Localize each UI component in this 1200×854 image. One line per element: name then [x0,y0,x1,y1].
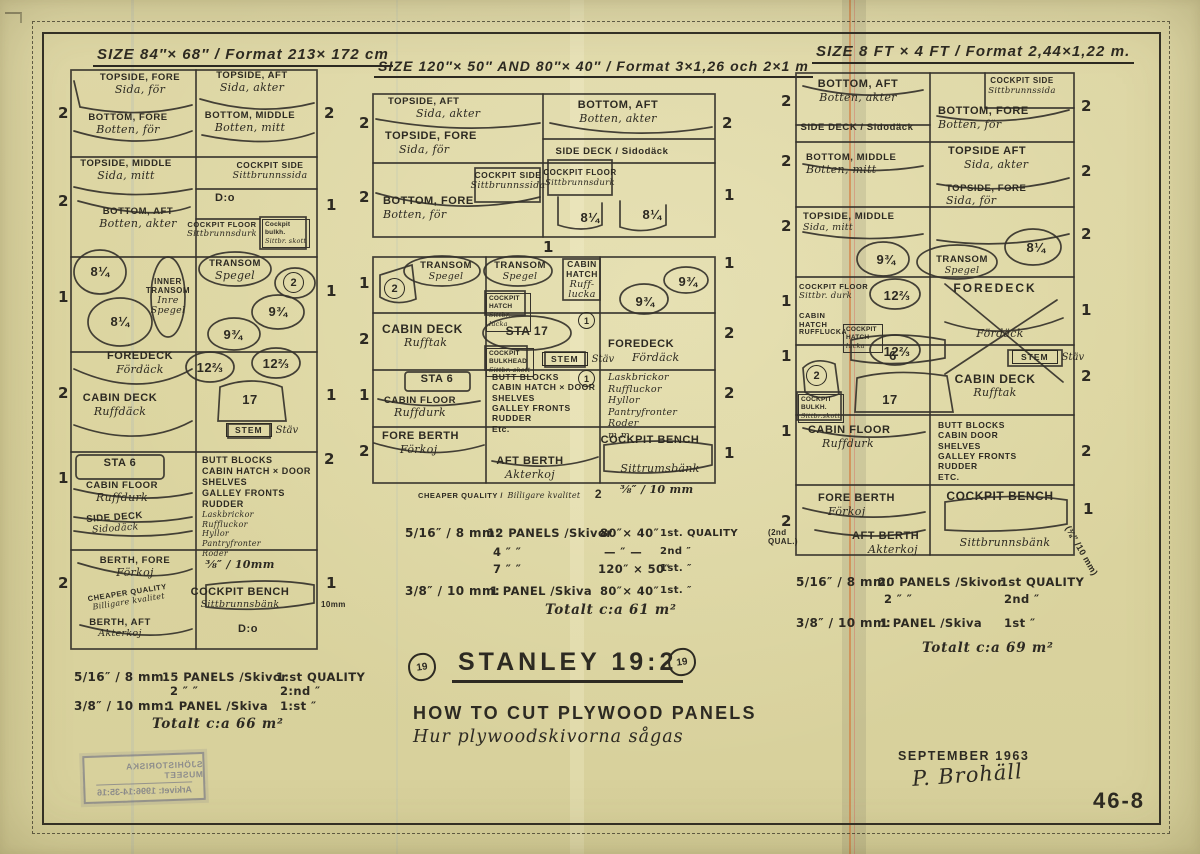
margin-count: 2 [1081,442,1091,460]
drawing-title: STANLEY 19:2 [452,648,683,683]
summary-thickness: 5/16″ / 8 mm: [796,575,891,589]
piece-number: 12⅔ [197,358,224,377]
margin-count: 1 [326,196,336,214]
stem-label: STEMStäv [1012,350,1084,364]
margin-count: 2 [781,217,791,235]
summary-count: 20 PANELS /Skivor [878,575,1003,589]
summary-count: 15 PANELS /Skivor [162,670,287,684]
summary-count: 2 ″ ″ [170,684,198,698]
margin-count: 1 [724,186,734,204]
margin-count: 1 [326,386,336,404]
piece-label: COCKPIT BENCH [946,489,1053,503]
drawing-subtitle-en: HOW TO CUT PLYWOOD PANELS [413,703,757,724]
piece-label: BOTTOM, FOREBotten, för [88,112,167,137]
margin-count: 2 [359,330,369,348]
piece-label: SIDE DECK / Sidodäck [801,122,914,133]
piece-number: 9¾ [268,302,287,321]
cockpit-hatch-box: COCKPITHATCHlucka [843,324,883,353]
summary-total: Totalt c:a 61 m² [545,602,677,618]
summary-quality: 2nd ″ [1004,592,1040,606]
margin-count: 1 [724,254,734,272]
piece-label: BOTTOM, MIDDLEBotten, mitt [806,152,896,177]
piece-label: FORE BERTHFörkoj [818,492,895,518]
piece-label: BOTTOM, AFTBotten, akter [99,206,176,231]
piece-label: CABIN FLOORRuffdurk [384,395,456,420]
piece-label: SIDE DECK / Sidodäck [556,146,669,157]
piece-label-sv: Fördäck [976,327,1023,340]
top-count: 1 [543,238,553,256]
piece-label: BERTH, AFTAkterkoj [89,617,151,640]
margin-count: 2 [58,574,68,592]
margin-count: 1 [1081,301,1091,319]
margin-count: 1 [781,292,791,310]
margin-count: 2 [722,114,732,132]
diagram2-title: SIZE 120″× 50″ AND 80″× 40″ / Format 3×1… [374,58,813,78]
binder-mark [5,12,22,23]
piece-label: BOTTOM, FOREBotten, för [383,195,474,221]
piece-number: 8¼ [580,208,599,227]
margin-count: 2 [1081,162,1091,180]
misc-pieces-list-sv: LaskbrickorRuffluckorHyllorPantryfronter… [608,372,677,441]
piece-label: TOPSIDE, FORESida, för [385,130,477,156]
margin-count: 2 [58,192,68,210]
piece-label: TRANSOMSpegel [420,260,472,283]
summary-count: 1 PANEL /Skiva [166,699,268,713]
piece-label: FOREDECK [953,281,1036,295]
piece-label: TOPSIDE, AFTSida, akter [388,96,480,121]
summary-quality: 2:nd ″ [280,684,321,698]
summary-count: 4 ″ ″ [493,545,521,559]
piece-label: FORE BERTHFörkoj [382,430,459,456]
station-label: STA 6 [104,457,137,470]
margin-count: 1 [58,288,68,306]
piece-label: TOPSIDE, AFTSida, akter [216,70,288,95]
piece-label: TOPSIDE, FORESida, för [946,183,1026,208]
summary-quality: 1:st QUALITY [276,670,365,684]
summary-quality: 1st. ″ [660,563,692,574]
margin-count: 2 [359,188,369,206]
museum-stamp: SJÖHISTORISKA MUSEET Arkivet: 1996:14-35… [82,752,206,804]
piece-label: AFT BERTHAkterkoj [852,530,919,556]
summary-count: 2 ″ ″ [884,592,912,606]
margin-count: 1 [781,422,791,440]
ditto-label: D:o [238,623,258,636]
margin-count: 2 [359,114,369,132]
sheet-number: 46-8 [1093,788,1145,814]
piece-label: CABIN FLOORRuffdurk [86,480,158,505]
stem-label: STEMStäv [226,423,298,437]
diagram3-title: SIZE 8 FT × 4 FT / Format 2,44×1,22 m. [812,43,1134,64]
piece-number: 17 [242,390,257,409]
summary-total: Totalt c:a 69 m² [922,640,1054,656]
cockpit-bulkhead-box: COCKPITBULKH.Sittbr.skott [798,394,844,423]
piece-label: CABINHATCHRuff-lucka [566,260,598,301]
summary-size: 80″× 40″ [600,526,659,540]
station-label: STA 6 [421,373,454,386]
misc-pieces-list: BUTT BLOCKSCABIN DOORSHELVESGALLEY FRONT… [938,420,1017,482]
count-circle: 2 [806,365,827,386]
margin-count: 1 [326,282,336,300]
piece-number: 9¾ [635,292,654,311]
piece-number: 8¼ [642,205,661,224]
piece-label: BOTTOM, FOREBotten, för [938,105,1029,131]
summary-total: Totalt c:a 66 m² [152,716,284,732]
piece-label: COCKPIT SIDESittbrunnssida [233,160,308,182]
piece-label: COCKPIT BENCH [601,434,700,447]
margin-count: 2 [724,324,734,342]
piece-label: BOTTOM, AFTBotten, akter [818,78,899,104]
piece-label: COCKPIT SIDESittbrunnssida [988,76,1055,96]
piece-label: COCKPIT FLOORSittbrunnsdurk [543,168,616,188]
margin-count: 1 [359,386,369,404]
thickness-note: ⅜″ / 10 mm [620,483,693,496]
piece-label: FOREDECKFördäck [107,350,173,376]
piece-label: SIDE DECKSidodäck [86,510,144,537]
piece-label: TRANSOMSpegel [494,260,546,283]
piece-number: 17 [882,390,897,409]
piece-label: CABINHATCHRUFFLUCKA [799,312,847,337]
summary-count: 7 ″ ″ [493,562,521,576]
cockpit-bulkhead-box: Cockpit bulkh. Sittbr. skott [262,219,310,248]
summary-size: — ″ — [604,545,642,559]
piece-number: 6 [889,346,897,365]
margin-count: 2 [58,104,68,122]
blueprint-sheet: SIZE 84″× 68″ / Format 213× 172 cm 2 2 1… [0,0,1200,854]
summary-thickness: 5/16″ / 8 mm: [74,670,169,684]
summary-thickness: 3/8″ / 10 mm: [74,699,169,713]
station-label: STA 17 [506,324,549,338]
margin-count: 2 [1081,367,1091,385]
summary-count: 12 PANELS /Skivor [487,526,612,540]
piece-label: TOPSIDE, FORESida, för [100,72,180,97]
summary-quality: 1st QUALITY [1000,575,1084,589]
quality-note: CHEAPER QUALITY / Billigare kvalitet 2 [418,484,602,503]
summary-quality: 1st. ″ [660,585,692,596]
piece-label: BOTTOM, AFTBotten, akter [578,99,659,125]
stem-label: STEMStäv [542,352,614,366]
piece-label: COCKPIT BENCHSittbrunnsbänk [191,586,290,611]
piece-label: TOPSIDE AFTSida, akter [948,145,1028,171]
summary-count: 1 PANEL /Skiva [880,616,982,630]
piece-label: CABIN DECKRuffdäck [83,392,158,418]
piece-label: TRANSOMSpegel [936,254,988,277]
margin-count: 1 [326,574,336,592]
margin-quality-note: QUAL.) [768,537,798,546]
summary-quality: 1st ″ [1004,616,1036,630]
piece-number: 12⅔ [263,354,290,373]
piece-label: INNERTRANSOMInreSpegel [146,278,190,316]
count-circle: 2 [384,278,405,299]
count-circle: 2 [283,272,304,293]
piece-number: 9¾ [223,325,242,344]
margin-thickness-note: 10mm [321,600,346,609]
summary-thickness: 3/8″ / 10 mm: [796,616,891,630]
summary-count: 1 PANEL /Skiva [490,584,592,598]
piece-number: 9¾ [678,272,697,291]
piece-label: CABIN DECKRufftak [382,322,463,350]
piece-number: 8¼ [1026,238,1045,257]
summary-quality: 1st. QUALITY [660,528,738,539]
misc-pieces-list: BUTT BLOCKSCABIN HATCH × DOORSHELVESGALL… [202,455,311,559]
summary-thickness: 3/8″ / 10 mm: [405,584,500,598]
margin-count: 1 [359,274,369,292]
piece-number: 12⅔ [884,342,911,361]
piece-number: 8¼ [110,312,129,331]
margin-count: 1 [781,347,791,365]
margin-count: 2 [724,384,734,402]
thickness-note: ⅜″ / 10mm [205,558,274,571]
margin-count: 2 [58,384,68,402]
margin-count: 2 [781,92,791,110]
margin-count: 1 [58,469,68,487]
margin-count: 2 [359,442,369,460]
margin-quality-note: (2nd [768,528,787,537]
piece-label: TOPSIDE, MIDDLESida, mitt [803,211,894,234]
margin-count: 2 [1081,225,1091,243]
piece-label: AFT BERTHAkterkoj [496,455,563,481]
margin-count: 2 [324,450,334,468]
piece-label: CABIN DECKRufftak [955,372,1036,400]
piece-label: COCKPIT SIDESittbrunnssida [471,170,546,192]
count-circle: 1 [578,370,595,387]
piece-number: 9¾ [876,250,895,269]
piece-label: CABIN FLOORRuffdurk [808,424,890,450]
margin-count: 2 [324,104,334,122]
summary-quality: 1:st ″ [280,699,317,713]
count-circle: 1 [578,312,595,329]
piece-number: 12⅔ [884,286,911,305]
summary-size: 80″× 40″ [600,584,659,598]
drawing-subtitle-sv: Hur plywoodskivorna sågas [413,727,684,747]
margin-count: 2 [781,152,791,170]
piece-label: BERTH, FOREFörkoj [100,555,170,580]
piece-label: COCKPIT FLOORSittbrunnsdurk [187,220,257,239]
margin-count: 1 [1083,500,1093,518]
summary-quality: 2nd ″ [660,546,691,557]
summary-thickness: 5/16″ / 8 mm: [405,526,500,540]
ditto-label: D:o [215,192,235,205]
margin-count: 1 [724,444,734,462]
piece-label-sv: Sittrumsbänk [620,462,699,475]
diagram1-title: SIZE 84″× 68″ / Format 213× 172 cm [93,46,393,67]
piece-number: 8¼ [90,262,109,281]
piece-label: TOPSIDE, MIDDLESida, mitt [80,158,171,183]
piece-label: COCKPIT FLOORSittbr. durk [799,282,868,301]
piece-label: BOTTOM, MIDDLEBotten, mitt [205,110,295,135]
margin-count: 2 [1081,97,1091,115]
piece-label: TRANSOMSpegel [209,258,261,283]
piece-label-sv: Sittbrunnsbänk [960,536,1051,549]
piece-label: FOREDECKFördäck [608,338,679,364]
